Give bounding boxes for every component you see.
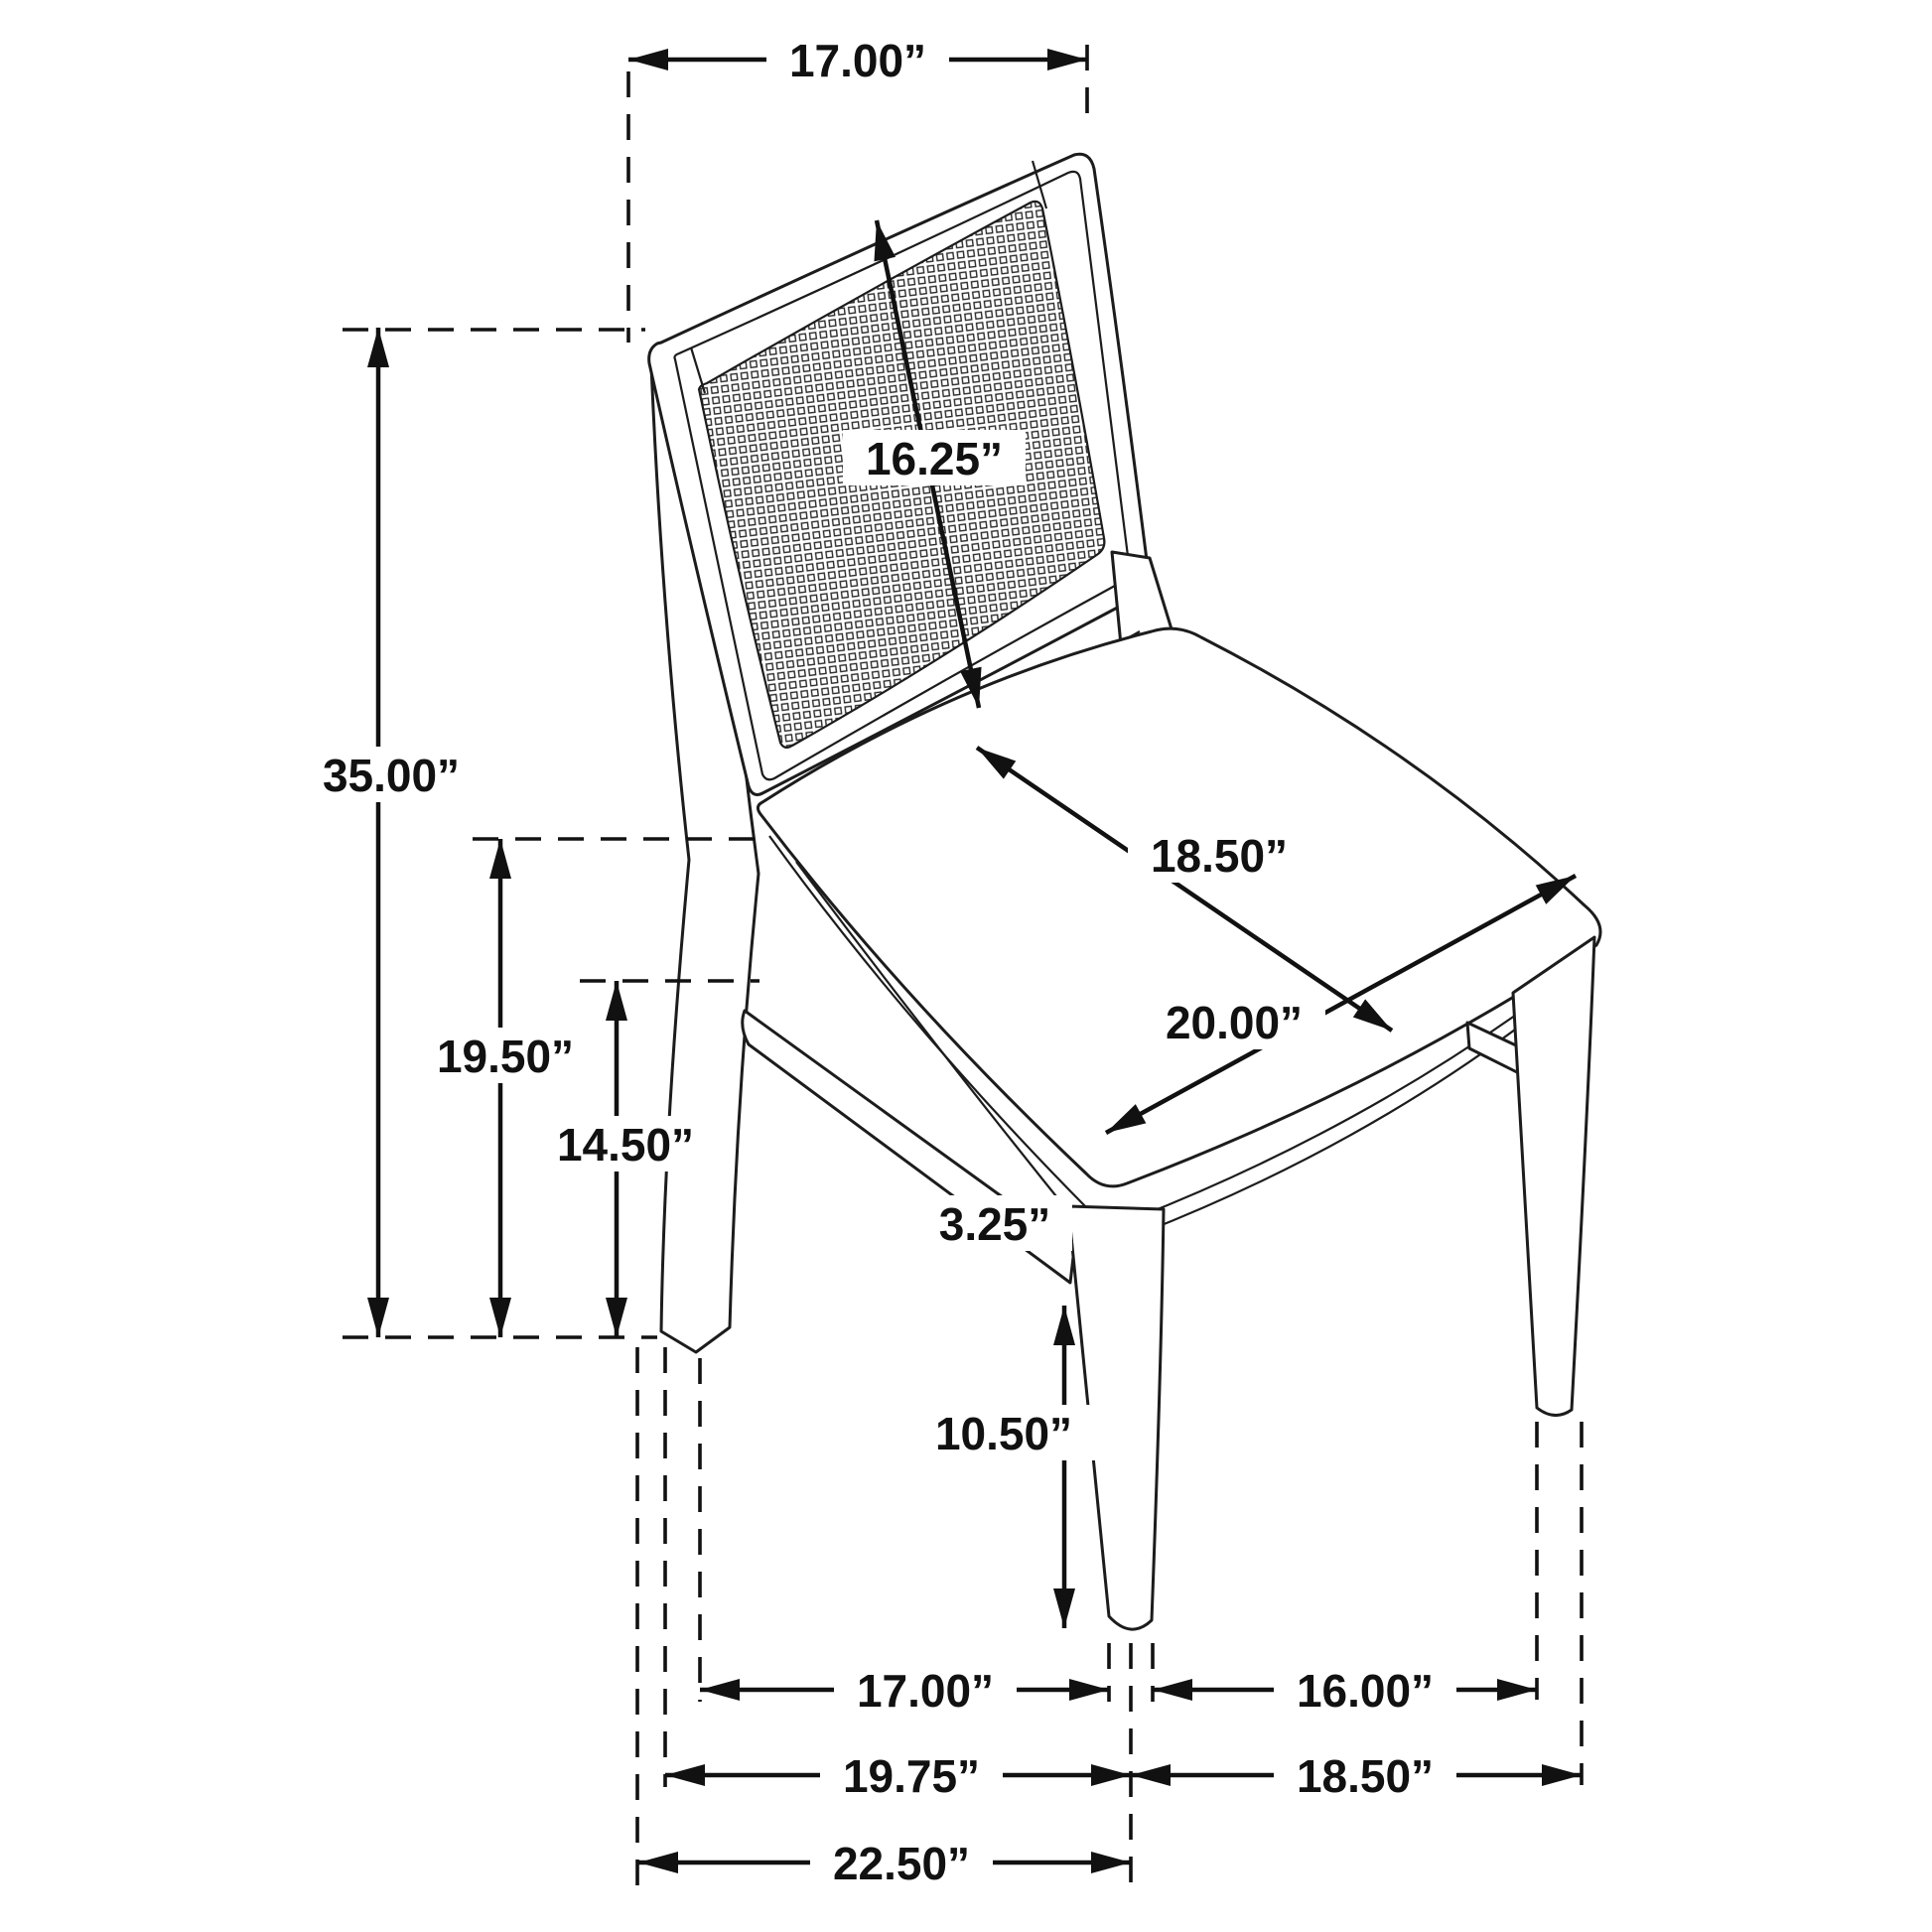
label-under-apron-height: 14.50”: [534, 1116, 717, 1172]
svg-text:19.75”: 19.75”: [843, 1750, 980, 1802]
front-right-leg: [1513, 937, 1594, 1416]
label-front-span-left: 17.00”: [834, 1664, 1017, 1717]
svg-text:17.00”: 17.00”: [857, 1665, 994, 1717]
label-back-panel-height: 16.25”: [843, 430, 1026, 485]
svg-text:17.00”: 17.00”: [789, 35, 926, 86]
label-footprint-overall: 22.50”: [810, 1837, 993, 1889]
chair-dimension-diagram: 17.00” 35.00” 16.25” 18.50” 20.00” 19.50…: [0, 0, 1932, 1932]
svg-text:20.00”: 20.00”: [1166, 997, 1303, 1048]
label-stretcher-floor: 10.50”: [912, 1405, 1095, 1460]
label-seat-height: 19.50”: [414, 1028, 597, 1083]
svg-text:16.00”: 16.00”: [1297, 1665, 1434, 1717]
svg-text:3.25”: 3.25”: [939, 1198, 1051, 1250]
label-overall-height: 35.00”: [300, 747, 483, 802]
svg-text:22.50”: 22.50”: [833, 1838, 970, 1889]
label-footprint-right: 18.50”: [1274, 1749, 1456, 1802]
chair-drawing: [616, 119, 1600, 1629]
label-seat-width: 20.00”: [1143, 994, 1325, 1049]
svg-text:10.50”: 10.50”: [935, 1408, 1072, 1459]
label-apron-gap: 3.25”: [918, 1195, 1072, 1251]
svg-text:35.00”: 35.00”: [323, 750, 460, 801]
label-back-width: 17.00”: [766, 32, 949, 87]
svg-text:18.50”: 18.50”: [1297, 1750, 1434, 1802]
label-footprint-left: 19.75”: [820, 1749, 1003, 1802]
diagram-canvas: 17.00” 35.00” 16.25” 18.50” 20.00” 19.50…: [0, 0, 1932, 1932]
svg-text:19.50”: 19.50”: [437, 1031, 574, 1082]
svg-text:14.50”: 14.50”: [557, 1119, 694, 1171]
svg-text:16.25”: 16.25”: [866, 433, 1003, 484]
svg-text:18.50”: 18.50”: [1151, 830, 1288, 882]
label-seat-depth: 18.50”: [1128, 827, 1311, 883]
label-front-span-right: 16.00”: [1274, 1664, 1456, 1717]
